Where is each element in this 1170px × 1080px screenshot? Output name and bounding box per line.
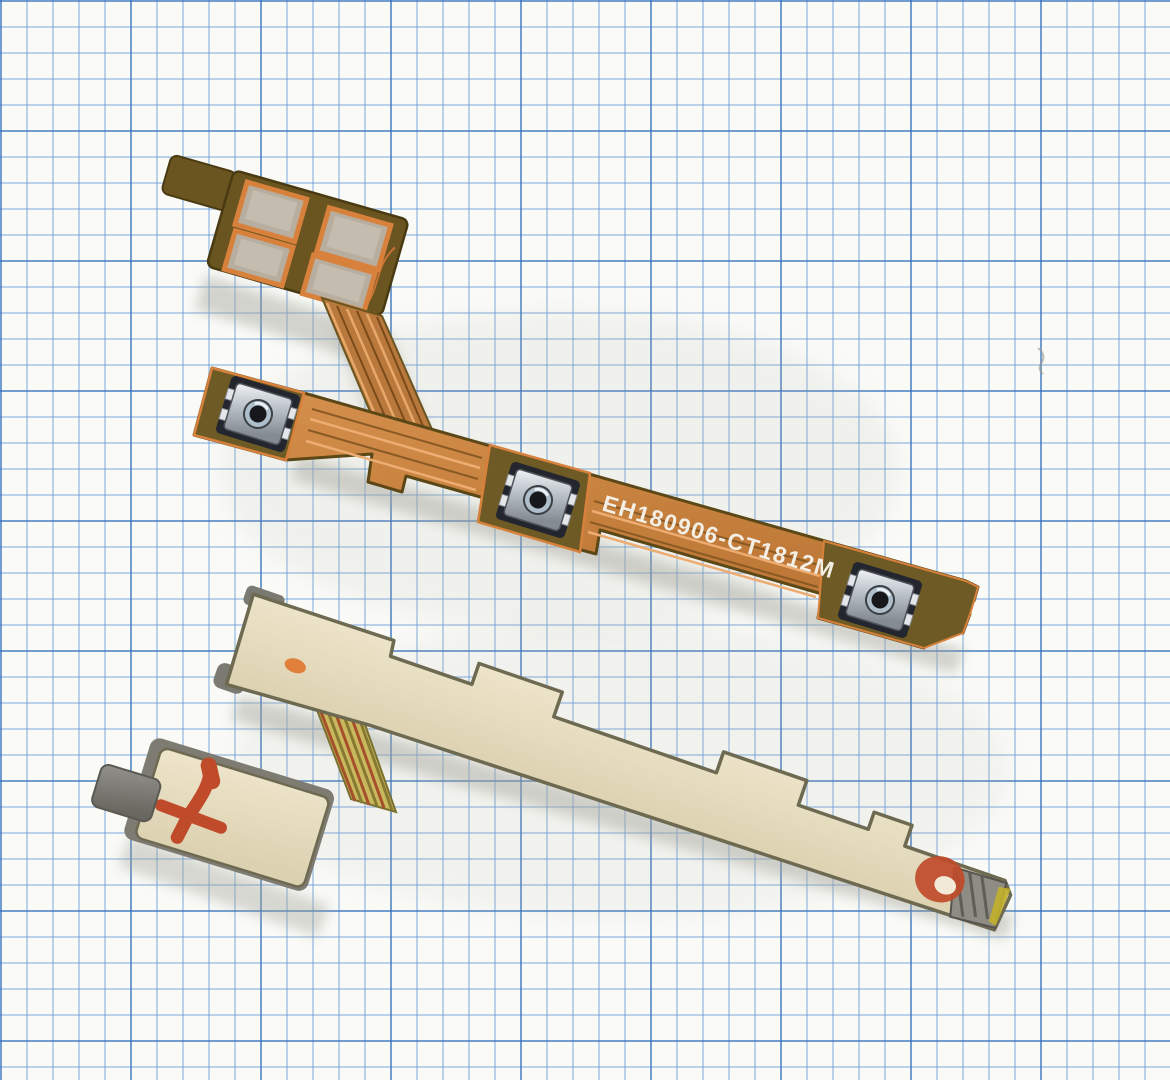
paper-scratch xyxy=(1038,348,1043,374)
connector-head xyxy=(145,152,409,316)
graph-paper-photo: EH180906-CT1812M xyxy=(0,0,1170,1080)
photo-canvas: EH180906-CT1812M xyxy=(0,0,1170,1080)
